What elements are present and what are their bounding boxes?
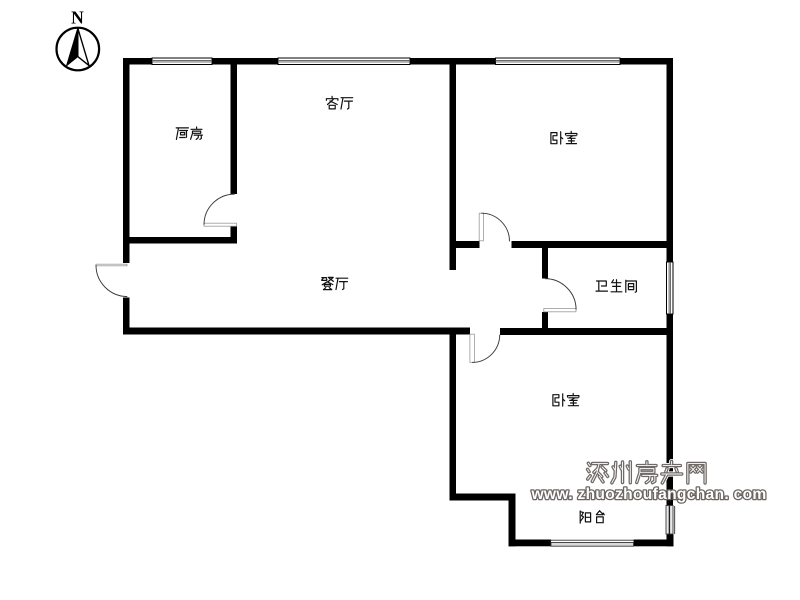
svg-text:N: N [71, 7, 84, 27]
svg-text:www. zhuozhoufangchan. com: www. zhuozhoufangchan. com [531, 486, 767, 503]
